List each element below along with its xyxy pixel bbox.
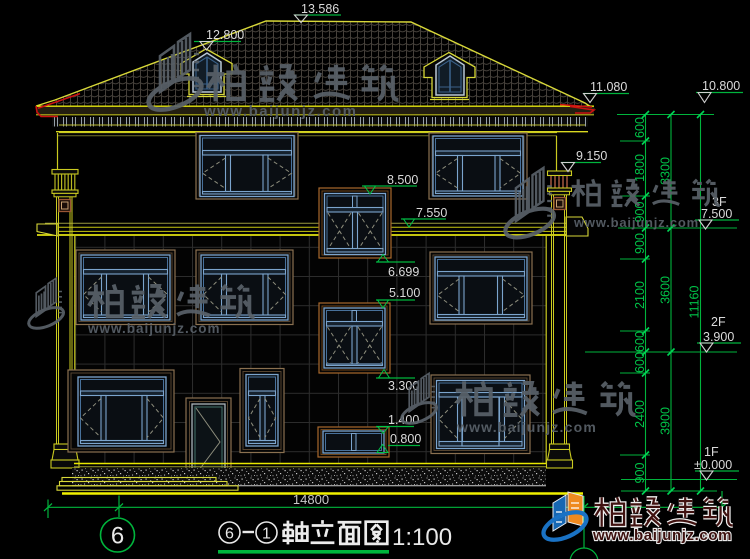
svg-text:1: 1 (262, 526, 271, 543)
svg-text:14800: 14800 (293, 492, 329, 507)
svg-text:11.080: 11.080 (590, 80, 627, 94)
svg-text:1800: 1800 (633, 154, 647, 182)
svg-text:2F: 2F (711, 315, 726, 329)
svg-text:1F: 1F (704, 445, 719, 459)
svg-text:3600: 3600 (659, 276, 673, 304)
svg-text:13.586: 13.586 (301, 2, 339, 16)
svg-text:600: 600 (633, 352, 647, 373)
svg-text:6.699: 6.699 (388, 265, 419, 279)
svg-text:12.800: 12.800 (206, 28, 244, 42)
svg-text:www.baijunjz.com: www.baijunjz.com (203, 103, 357, 120)
svg-text:6: 6 (225, 526, 234, 543)
svg-text:600: 600 (633, 117, 647, 138)
svg-text:600: 600 (633, 331, 647, 352)
svg-text:1:100: 1:100 (392, 524, 452, 551)
svg-text:www.baijunjz.com: www.baijunjz.com (456, 419, 597, 435)
svg-text:www.baijunjz.com: www.baijunjz.com (592, 527, 732, 544)
svg-text:3.900: 3.900 (703, 330, 734, 344)
svg-text:8.500: 8.500 (387, 173, 418, 187)
svg-text:11160: 11160 (688, 286, 702, 319)
svg-text:3900: 3900 (659, 407, 673, 435)
svg-text:5.100: 5.100 (389, 286, 420, 300)
svg-text:900: 900 (633, 233, 647, 254)
svg-text:0.800: 0.800 (390, 432, 421, 446)
svg-text:6: 6 (111, 523, 124, 550)
svg-text:www.baijunjz.com: www.baijunjz.com (573, 215, 699, 230)
svg-text:9.150: 9.150 (576, 149, 607, 163)
svg-text:2100: 2100 (633, 281, 647, 309)
svg-text:7.500: 7.500 (701, 207, 732, 221)
svg-text:10.800: 10.800 (702, 79, 740, 93)
svg-text:www.baijunjz.com: www.baijunjz.com (87, 321, 221, 336)
svg-text:900: 900 (633, 463, 647, 484)
svg-text:±0.000: ±0.000 (694, 458, 732, 472)
svg-text:7.550: 7.550 (416, 206, 447, 220)
